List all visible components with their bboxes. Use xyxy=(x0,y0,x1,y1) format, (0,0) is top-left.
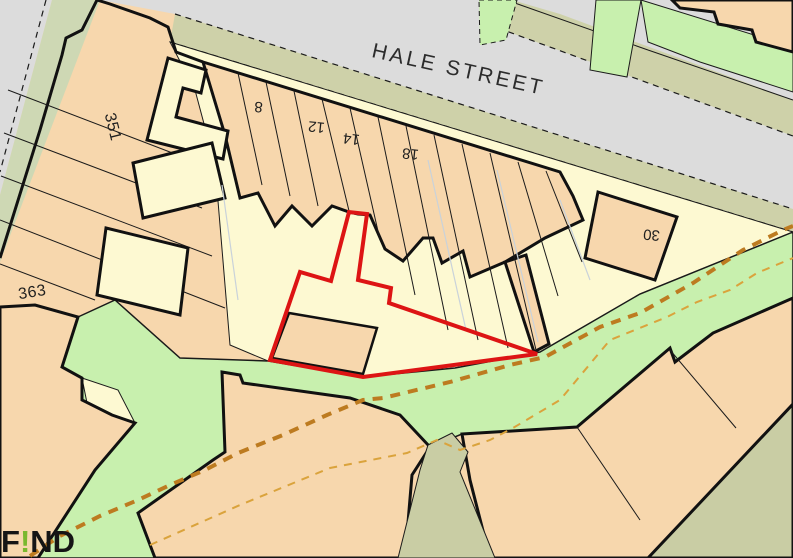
logo-letters-nd: ND xyxy=(30,524,75,558)
plot-label-30: 30 xyxy=(643,225,661,243)
plot-label-12: 12 xyxy=(307,117,325,136)
plot-label-14: 14 xyxy=(342,129,361,148)
map-canvas: HALE STREET351363812141830 xyxy=(0,0,793,558)
logo-letter-f: F xyxy=(1,524,20,558)
findmaps-watermark-logo: F!ND xyxy=(1,526,75,557)
map-viewport: HALE STREET351363812141830 F!ND xyxy=(0,0,793,558)
plot-label-18: 18 xyxy=(401,144,419,163)
plot-label-8: 8 xyxy=(254,98,264,116)
map-shapes-layer xyxy=(0,0,793,558)
logo-exclamation: ! xyxy=(20,524,30,558)
